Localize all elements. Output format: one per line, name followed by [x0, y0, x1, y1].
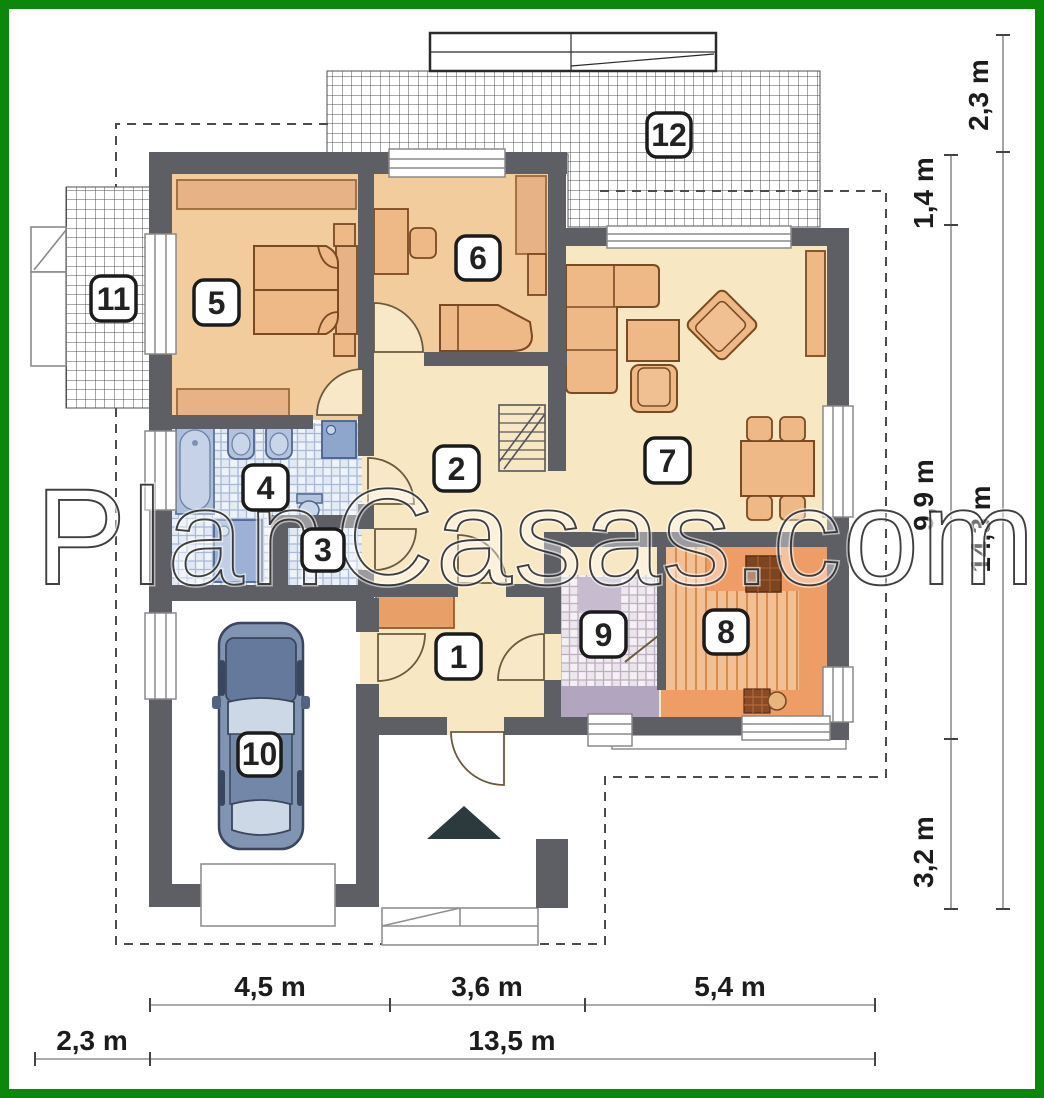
svg-text:9: 9 [595, 617, 613, 653]
svg-text:7: 7 [659, 443, 677, 479]
svg-text:3,2 m: 3,2 m [908, 816, 939, 888]
svg-text:12: 12 [651, 117, 687, 153]
svg-text:2: 2 [448, 451, 466, 487]
svg-text:3,6 m: 3,6 m [451, 971, 523, 1002]
svg-text:5: 5 [208, 285, 226, 321]
svg-text:11: 11 [97, 281, 131, 317]
svg-text:2,3 m: 2,3 m [963, 59, 994, 131]
svg-text:8: 8 [717, 614, 735, 650]
svg-text:4,5 m: 4,5 m [234, 971, 306, 1002]
svg-text:3: 3 [314, 532, 332, 568]
svg-text:4: 4 [257, 470, 275, 506]
svg-text:13,5 m: 13,5 m [468, 1025, 555, 1056]
svg-text:1,4 m: 1,4 m [908, 157, 939, 229]
svg-text:1: 1 [450, 639, 468, 675]
svg-text:10: 10 [242, 736, 278, 772]
svg-text:5,4 m: 5,4 m [694, 971, 766, 1002]
svg-text:6: 6 [469, 240, 487, 276]
svg-text:2,3 m: 2,3 m [56, 1025, 128, 1056]
